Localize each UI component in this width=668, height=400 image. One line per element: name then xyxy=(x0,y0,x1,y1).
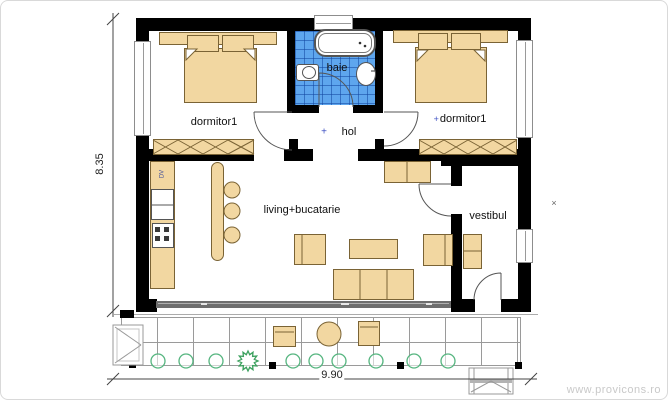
watermark: www.provicons.ro xyxy=(567,384,661,396)
bedroom-right-door xyxy=(384,112,418,146)
dishwasher-label: DV xyxy=(151,162,175,187)
wall-bottom-right xyxy=(501,299,531,312)
wardrobe xyxy=(419,139,517,155)
bedroom-right-cross-marker: + xyxy=(434,114,439,124)
entry-steps xyxy=(469,368,513,394)
pillow xyxy=(451,33,481,50)
sofa xyxy=(333,269,414,300)
fridge xyxy=(151,189,174,220)
bedroom-left-door xyxy=(254,112,292,150)
dimension-line-vertical xyxy=(107,13,119,317)
wall-bath-right xyxy=(375,31,383,113)
room-label-living-kitchen: living+bucatarie xyxy=(264,204,341,216)
terrace-post xyxy=(129,361,136,368)
bar-stool xyxy=(224,203,240,219)
room-label-vestibule: vestibul xyxy=(469,210,506,222)
pillow xyxy=(418,33,448,50)
window-bedroom-right xyxy=(516,40,533,138)
wardrobe xyxy=(153,139,254,155)
kitchen-island xyxy=(211,162,224,261)
door-post xyxy=(289,139,298,150)
pillow xyxy=(187,35,219,52)
terrace-post xyxy=(397,362,404,369)
door-post xyxy=(375,139,384,150)
window-bathroom xyxy=(314,15,353,30)
vestibule-door xyxy=(419,184,451,216)
terrace-chair xyxy=(358,321,380,346)
hall-cross-marker: + xyxy=(321,127,327,138)
window-vestibule xyxy=(516,229,533,263)
floor-plan-canvas: DV xyxy=(0,0,668,400)
room-label-bedroom-right: + dormitor1 xyxy=(434,113,487,125)
bathtub xyxy=(314,29,376,57)
wall-hall-stub xyxy=(284,149,313,161)
wall-bath-bottom-right xyxy=(353,105,383,113)
vestibule-bench xyxy=(463,234,482,269)
wall-bath-left xyxy=(287,31,295,113)
entrance-door xyxy=(474,273,501,300)
armchair xyxy=(294,234,326,265)
bedroom-right-label-text: dormitor1 xyxy=(440,113,486,125)
dimension-horizontal: 9.90 xyxy=(319,369,344,381)
room-label-hall: hol xyxy=(342,126,357,138)
stove xyxy=(152,223,174,248)
wall-bottom-left xyxy=(136,299,157,312)
room-label-bedroom-left: dormitor1 xyxy=(191,116,237,128)
terrace-post xyxy=(515,362,522,369)
dimension-vertical: 8.35 xyxy=(94,151,106,176)
room-label-bathroom: baie xyxy=(327,62,348,74)
sink xyxy=(356,62,376,86)
coffee-table xyxy=(349,239,398,259)
porch-post xyxy=(120,310,134,318)
wall-bath-bottom-left xyxy=(287,105,319,113)
terrace-chair xyxy=(273,326,296,347)
wall-vestibule-left-upper xyxy=(451,161,462,186)
double-bed xyxy=(415,47,487,103)
site-cross-marker: × xyxy=(551,198,556,208)
bar-stool xyxy=(224,227,240,243)
toilet xyxy=(296,64,319,81)
double-bed xyxy=(184,48,257,103)
terrace-edge-line xyxy=(114,314,538,315)
terrace-post xyxy=(269,362,276,369)
terrace-deck xyxy=(121,317,521,366)
window-bedroom-left xyxy=(134,41,151,136)
sliding-glass-door xyxy=(156,301,451,308)
armchair xyxy=(423,234,453,266)
sideboard xyxy=(384,161,431,183)
bar-stool xyxy=(224,182,240,198)
pillow xyxy=(222,35,254,52)
